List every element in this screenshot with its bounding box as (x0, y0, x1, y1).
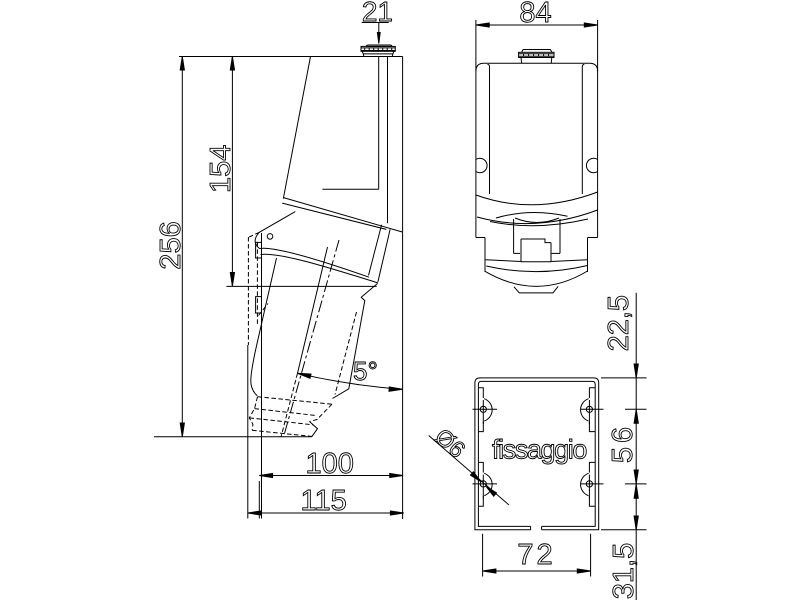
svg-text:5°: 5° (353, 356, 378, 386)
svg-text:fissaggio: fissaggio (492, 435, 586, 465)
svg-text:22,5: 22,5 (603, 295, 635, 351)
svg-text:72: 72 (517, 539, 555, 571)
svg-text:31,5: 31,5 (608, 543, 640, 599)
svg-text:56: 56 (607, 423, 639, 463)
svg-text:Ø6: Ø6 (430, 423, 470, 463)
svg-text:115: 115 (300, 485, 346, 517)
